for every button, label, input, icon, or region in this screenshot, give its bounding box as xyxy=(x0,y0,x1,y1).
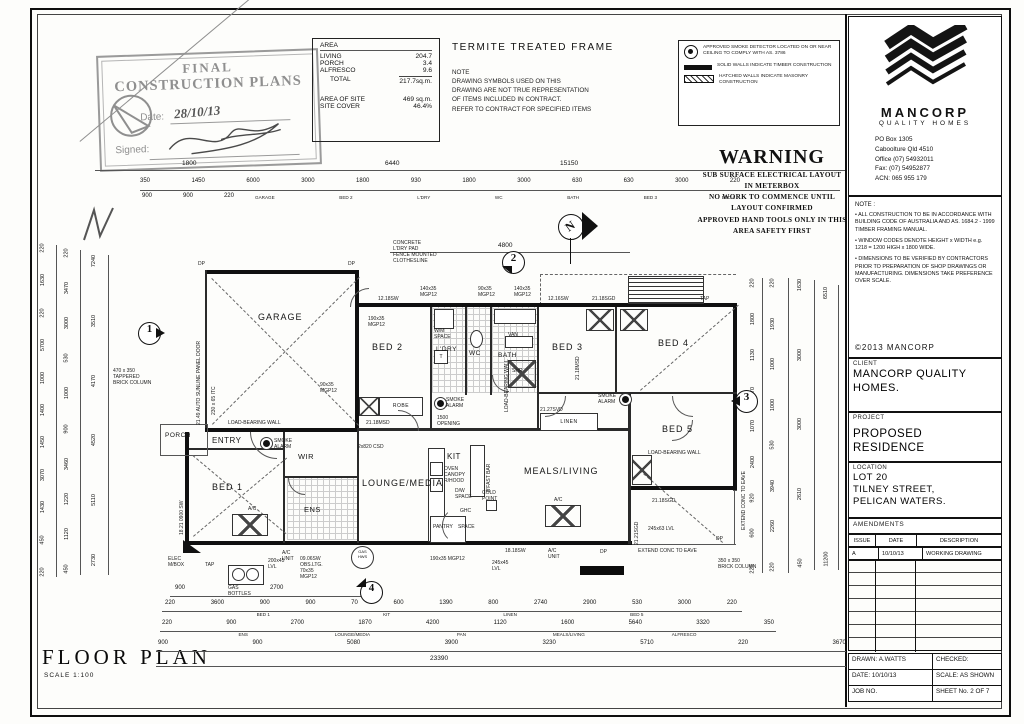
dim-4800: 4800 xyxy=(498,242,512,249)
wall-bed5-bottom xyxy=(628,486,737,490)
wall-south xyxy=(185,541,632,545)
path-step-bar xyxy=(580,566,624,575)
note-dp1: DP xyxy=(198,261,205,267)
room-kit: KIT xyxy=(447,452,461,461)
note-garage-door: 21.49 AUTO SUNLINE PANEL DOOR xyxy=(196,285,202,425)
copyright: ©2013 MANCORP xyxy=(855,343,935,352)
brand-box: MANCORP QUALITY HOMES PO Box 1305Caboolt… xyxy=(848,16,1002,196)
lintel-mgpE: 90x35 MGP12 xyxy=(320,382,337,394)
area-row-value: 3.4 xyxy=(423,60,432,67)
termite-title: TERMITE TREATED FRAME xyxy=(452,42,614,53)
meals-ac-box xyxy=(545,505,581,527)
area-row-label: LIVING xyxy=(320,53,342,60)
wall-garage-bottom xyxy=(205,428,359,432)
location-label: LOCATION xyxy=(849,463,1001,471)
smoke-alarm-dot-entry xyxy=(263,440,270,447)
area-total-value: 217.7sq.m. xyxy=(399,76,432,85)
bottom-dim-row3: 2209002700187042001120160056403320350 xyxy=(162,620,774,626)
note-itc: 230 x 65 ITC xyxy=(211,345,217,415)
top-dim-row2: 3501450600030001800930180030006306303000… xyxy=(140,178,740,184)
brand-address: PO Box 1305Caboolture Qld 4510Office (07… xyxy=(875,135,934,184)
north-arrow-circle: N xyxy=(558,214,584,240)
porch-outline xyxy=(160,424,208,456)
signature-scribble xyxy=(160,117,291,160)
note-concrete-ldry: CONCRETE L'DRY PAD FENCE MOUNTED CLOTHES… xyxy=(393,240,437,264)
section-marker-2-arrow xyxy=(502,266,512,274)
section-marker-3-arrow xyxy=(731,396,740,406)
bottom-room-names-row2: BED 1KITLINENBED 5 xyxy=(200,612,700,617)
wall-bath-bed3 xyxy=(537,307,539,430)
bath-shower xyxy=(508,360,536,388)
site-cover-label: SITE COVER xyxy=(320,103,360,110)
area-total-label: TOTAL xyxy=(320,76,351,85)
site-area-value: 469 sq.m. xyxy=(403,96,432,103)
area-row-label: ALFRESCO xyxy=(320,67,356,74)
termite-note: NOTE DRAWING SYMBOLS USED ON THIS DRAWIN… xyxy=(452,68,591,114)
note-oven-canopy: OVEN CANOPY R/HOOD xyxy=(444,466,465,484)
note-fridge-space: SPACE xyxy=(458,524,475,530)
window-21-21sgd: 21.21SGD xyxy=(634,500,640,545)
note-smoke2: SMOKE ALARM xyxy=(446,397,464,409)
approval-stamp: FINAL CONSTRUCTION PLANS Date: 28/10/13 … xyxy=(96,48,322,172)
solid-wall-icon xyxy=(684,65,712,70)
amendments-column-headers: ISSUE DATE DESCRIPTION xyxy=(848,534,1002,547)
bed3-robe xyxy=(586,309,614,331)
note-extend-conc-1: EXTEND CONC TO EAVE xyxy=(638,548,697,554)
bed5-robe xyxy=(632,455,652,485)
note-lvl-245b: 245x63 LVL xyxy=(648,526,674,532)
courtyard-fence-left xyxy=(540,274,541,305)
window-21-18sgd-alfresco: 21.18SGD xyxy=(652,498,675,504)
smoke-alarm-dot-hall-west xyxy=(437,400,444,407)
room-bed5: BED 5 xyxy=(662,424,693,434)
north-arrow-n: N xyxy=(562,218,578,235)
dim-1800: 1800 xyxy=(182,160,196,167)
room-bed4: BED 4 xyxy=(658,338,689,348)
lintel-mgpA: 140x35 MGP12 xyxy=(420,286,437,298)
bottom-dim-row2: 2203600900900706001390800274029005303000… xyxy=(165,600,737,606)
room-pantry: PANTRY xyxy=(433,524,453,530)
legend-item-hatched-wall: HATCHED WALLS INDICATE MASONRY CONSTRUCT… xyxy=(719,74,834,86)
room-bed2: BED 2 xyxy=(372,342,403,352)
wc-pan xyxy=(470,330,483,348)
note-ac1-unit: A/C UNIT xyxy=(282,550,294,562)
site-cover-value: 46.4% xyxy=(413,103,432,110)
notes-label: NOTE : xyxy=(855,202,995,208)
dim-15150: 15150 xyxy=(560,160,578,167)
lintel-mgpF: 190x35 MGP12 xyxy=(430,556,465,562)
top-room-names-row: GARAGEBED 2L'DRYWCBATHBED 3BED 4 xyxy=(255,195,735,200)
clothesline xyxy=(628,276,704,304)
room-ens: ENS xyxy=(304,505,321,514)
note-dp4: DP xyxy=(716,536,723,542)
legend-item-solid-wall: SOLID WALLS INDICATE TIMBER CONSTRUCTION xyxy=(717,63,832,69)
area-row-value: 9.6 xyxy=(423,67,432,74)
note-dp3: DP xyxy=(600,549,607,555)
right-dim-col3: 1630300030002610450 xyxy=(793,282,808,566)
section-marker-4-arrow xyxy=(356,578,366,587)
right-dim-col4: 651011200 xyxy=(818,290,834,562)
legend-item-smoke: APPROVED SMOKE DETECTOR LOCATED ON OR NE… xyxy=(703,45,834,57)
amendments-empty-rows xyxy=(848,560,1002,651)
alfresco-east-edge xyxy=(734,490,735,545)
note-bfast-bar: B'FAST BAR xyxy=(486,448,492,492)
bed4-robe xyxy=(620,309,648,331)
left-dim-col2: 220347030005301000900346012201120450 xyxy=(60,250,74,572)
room-garage: GARAGE xyxy=(258,312,303,322)
site-area-label: AREA OF SITE xyxy=(320,96,365,103)
note-2x820-csd: 2x820 CSD xyxy=(358,444,384,450)
project-box: PROJECT PROPOSED RESIDENCE xyxy=(848,412,1002,462)
bottom-room-names-row3: ENSLOUNGE/MEDIAPANMEALS/LIVINGALFRESCO xyxy=(195,632,740,637)
gas-bottle-2 xyxy=(246,568,259,581)
location-box: LOCATION LOT 20TILNEY STREET,PELICAN WAT… xyxy=(848,462,1002,518)
room-bed1: BED 1 xyxy=(212,482,243,492)
general-notes-box: NOTE : • ALL CONSTRUCTION TO BE IN ACCOR… xyxy=(848,196,1002,358)
window-21-18msd-bed2: 21.18MSD xyxy=(366,420,390,426)
lintel-mgpC: 140x35 MGP12 xyxy=(514,286,531,298)
window-12-16sw: 12.16SW xyxy=(548,296,569,302)
brand-name: MANCORP xyxy=(849,105,1001,120)
right-dim-col2: 22019301000100053039402260220 xyxy=(766,280,780,570)
alfresco-south-edge xyxy=(630,544,736,545)
mancorp-logo xyxy=(881,25,971,103)
wall-garage-top xyxy=(205,270,359,274)
room-meals: MEALS/LIVING xyxy=(524,466,599,476)
gas-hws: GAS HWS xyxy=(351,546,374,569)
room-ldry: L'DRY xyxy=(436,346,457,353)
note-shr: SHR xyxy=(512,368,523,374)
top-dim-row3-left: 900900220 xyxy=(142,193,234,199)
notes-bullets: • ALL CONSTRUCTION TO BE IN ACCORDANCE W… xyxy=(855,212,995,286)
window-21-18sgd: 21.18SGD xyxy=(592,296,615,302)
warning-title: WARNING xyxy=(688,146,856,169)
area-table: AREA LIVING204.7 PORCH3.4 ALFRESCO9.6 TO… xyxy=(312,38,440,142)
room-wir: WIR xyxy=(298,452,314,461)
bed2-shower-box xyxy=(359,397,379,416)
garage-door-line xyxy=(205,270,207,432)
dim-6440: 6440 xyxy=(385,160,399,167)
client-value: MANCORP QUALITY HOMES. xyxy=(849,367,1001,397)
note-opening-1500: 1500 OPENING xyxy=(437,415,460,427)
wall-bed3-bed4 xyxy=(615,307,617,392)
window-12-18sw: 12.18SW xyxy=(378,296,399,302)
note-dp2: DP xyxy=(348,261,355,267)
note-lbw-garage: LOAD-BEARING WALL xyxy=(228,420,281,426)
right-dim-col1: 220180011307010702400920600220 xyxy=(746,280,760,572)
stamp-signed-label: Signed: xyxy=(115,144,149,156)
drawing-sheet: FINAL CONSTRUCTION PLANS Date: 28/10/13 … xyxy=(0,0,1024,724)
note-ac2: A/C xyxy=(554,497,562,503)
smoke-detector-icon xyxy=(684,45,698,59)
titleblock-divider xyxy=(845,14,847,707)
smoke-alarm-dot-hall-east xyxy=(622,396,629,403)
area-row-label: PORCH xyxy=(320,60,344,67)
elec-meter-box xyxy=(183,540,201,553)
lintel-mgpD: 190x35 MGP12 xyxy=(368,316,385,328)
brand-tagline: QUALITY HOMES xyxy=(849,120,1001,127)
north-arrow-stem xyxy=(570,238,571,264)
note-lvl-245: 245x45 LVL xyxy=(492,560,508,572)
note-gas-bottles: GAS BOTTLES xyxy=(228,585,251,597)
area-row-value: 204.7 xyxy=(415,53,432,60)
bed1-ac-box xyxy=(232,514,268,536)
lintel-mgpB: 90x35 MGP12 xyxy=(478,286,495,298)
note-ghc: GHC xyxy=(460,508,471,514)
note-extend-conc-2: EXTEND CONC TO EAVE xyxy=(741,440,747,530)
legend-box: APPROVED SMOKE DETECTOR LOCATED ON OR NE… xyxy=(678,40,840,126)
wall-hall-top xyxy=(537,392,737,394)
note-tap: TAP xyxy=(205,562,214,568)
note-smoke1: SMOKE ALARM xyxy=(274,438,292,450)
location-value: LOT 20TILNEY STREET,PELICAN WATERS. xyxy=(849,471,1001,509)
note-tap2: TAP xyxy=(700,296,709,302)
floor-plan-scale: SCALE 1:100 xyxy=(44,672,94,679)
window-21-27svd: 21.27SVD xyxy=(540,407,563,413)
note-van: VAN xyxy=(508,332,518,338)
bottom-dim-row1: 900270070 xyxy=(175,585,375,591)
gas-bottle-1 xyxy=(232,568,245,581)
note-smoke3: SMOKE ALARM xyxy=(598,393,616,405)
note-bed1-window: 18.21 0900 SW xyxy=(179,465,185,535)
wall-meals-bed5 xyxy=(628,394,631,544)
note-ac1: A/C xyxy=(248,506,256,512)
amendments-header: AMENDMENTS xyxy=(848,518,1002,534)
note-dw-space: D/W SPACE xyxy=(455,488,472,500)
note-tapered-column: 470 x 350 TAPPERED BRICK COLUMN xyxy=(113,368,151,386)
oven xyxy=(430,462,443,476)
note-obs-window: 09.06SW OBS.LTG. 70x35 MGP12 xyxy=(300,556,323,580)
room-lounge: LOUNGE/MEDIA xyxy=(362,478,443,488)
drawing-info-box: DRAWN: A.WATTS CHECKED: DATE: 10/10/13 S… xyxy=(848,653,1002,702)
room-wc: WC xyxy=(469,350,481,357)
note-wm-space: W/M SPACE xyxy=(434,328,451,340)
courtyard-fence-top xyxy=(540,274,736,275)
handwritten-mark xyxy=(80,206,116,244)
washing-machine-space xyxy=(434,309,454,329)
bath-tub xyxy=(494,309,536,324)
note-elec-mbox: ELEC M/BOX xyxy=(168,556,184,568)
client-label: CLIENT xyxy=(849,359,1001,367)
window-18-18sw: 18.18SW xyxy=(505,548,526,554)
note-ac2-unit: A/C UNIT xyxy=(548,548,560,560)
section-marker-1-arrow xyxy=(156,328,165,338)
dim-total-23390: 23390 xyxy=(430,655,448,662)
left-dim-col3: 724035104170452051102730 xyxy=(86,258,102,563)
project-value: PROPOSED RESIDENCE xyxy=(849,426,1001,457)
bottom-dim-row4: 90090050803900323057102203670 xyxy=(158,640,846,646)
room-entry: ENTRY xyxy=(212,436,241,445)
hatched-wall-icon xyxy=(684,75,714,83)
amendment-row: A 10/10/13 WORKING DRAWING xyxy=(848,547,1002,560)
left-dim-col1: 2201630220570010001400145030701430450220 xyxy=(36,245,50,575)
room-porch: PORCH xyxy=(165,432,191,439)
window-21-18msd-bed3: 21.18MSD xyxy=(575,325,581,380)
project-label: PROJECT xyxy=(849,413,1001,421)
note-lbw-bed5: LOAD-BEARING WALL xyxy=(648,450,701,456)
client-box: CLIENT MANCORP QUALITY HOMES. xyxy=(848,358,1002,412)
area-title: AREA xyxy=(320,42,432,51)
note-brick-column: 350 x 350 BRICK COLUMN xyxy=(718,558,756,570)
north-arrow-head xyxy=(582,212,598,240)
